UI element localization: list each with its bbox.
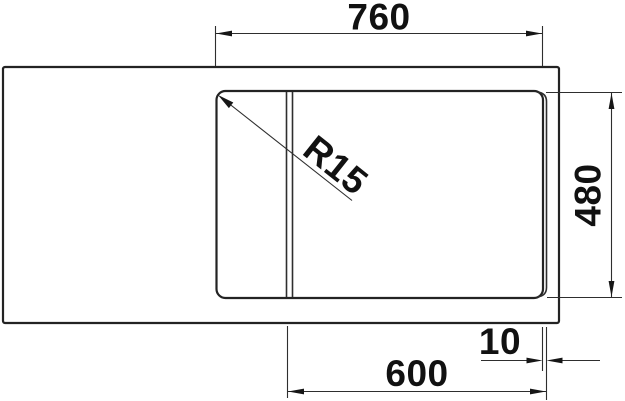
dimension-bottom-width-label: 600	[385, 353, 448, 394]
dimension-right-depth-label: 480	[568, 163, 609, 226]
corner-radius-label: R15	[296, 128, 376, 203]
arrowhead-left-icon	[216, 31, 232, 37]
dimension-right-depth: 480	[546, 93, 622, 298]
technical-drawing-canvas: 760 480 600 10	[0, 0, 625, 401]
sink-outer-outline	[3, 67, 559, 323]
sink-dimension-drawing: 760 480 600 10	[0, 0, 625, 401]
radius-callout: R15	[218, 95, 376, 203]
arrowhead-left-icon	[547, 358, 563, 364]
arrowhead-down-icon	[609, 281, 615, 297]
dimension-right-gap: 10	[479, 321, 600, 371]
arrowhead-right-icon	[526, 31, 542, 37]
arrowhead-left-icon	[288, 389, 304, 395]
arrowhead-right-icon	[527, 358, 543, 364]
basin-outline	[217, 91, 544, 298]
arrowhead-right-icon	[530, 389, 546, 395]
arrowhead-corner-icon	[218, 95, 233, 108]
dimension-right-gap-label: 10	[479, 321, 521, 362]
arrowhead-up-icon	[609, 93, 615, 109]
dimension-top-width: 760	[216, 0, 543, 66]
dimension-top-width-label: 760	[347, 0, 410, 38]
